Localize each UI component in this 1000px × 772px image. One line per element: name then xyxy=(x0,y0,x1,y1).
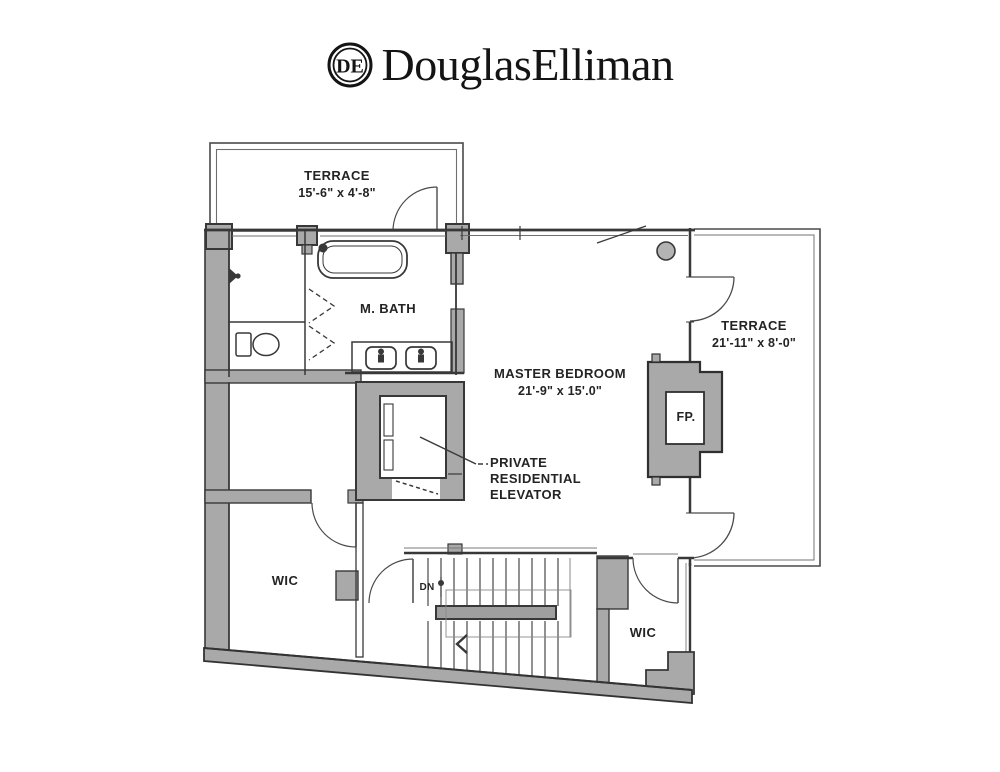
label-terrace-top-dims: 15'-6" x 4'-8" xyxy=(298,186,376,202)
label-elevator-line1: PRIVATE xyxy=(490,455,581,471)
label-elevator-line2: RESIDENTIAL xyxy=(490,471,581,487)
staircase xyxy=(404,548,597,678)
label-wic-right: WIC xyxy=(630,625,656,641)
label-master-bath: M. BATH xyxy=(360,301,416,317)
label-fireplace: FP. xyxy=(676,410,695,426)
wic-left-walls xyxy=(229,382,363,657)
elevator xyxy=(356,382,464,500)
label-stairs-dn: DN xyxy=(419,582,434,595)
label-terrace-right-dims: 21'-11" x 8'-0" xyxy=(712,336,796,352)
label-private-elevator: PRIVATE RESIDENTIAL ELEVATOR xyxy=(490,455,581,503)
bottom-wall xyxy=(204,648,692,703)
floorplan-page: DE DouglasElliman xyxy=(0,0,1000,772)
structural-column xyxy=(657,242,675,260)
label-terrace-top-name: TERRACE xyxy=(304,168,370,184)
floorplan-drawing xyxy=(0,0,1000,772)
label-elevator-line3: ELEVATOR xyxy=(490,487,581,503)
master-bath-fixtures xyxy=(229,231,464,377)
label-master-bedroom-name: MASTER BEDROOM xyxy=(494,366,626,382)
stair-door xyxy=(369,559,413,603)
label-master-bedroom-dims: 21'-9" x 15'.0" xyxy=(518,384,602,400)
label-wic-left: WIC xyxy=(272,573,298,589)
label-terrace-right-name: TERRACE xyxy=(721,318,787,334)
